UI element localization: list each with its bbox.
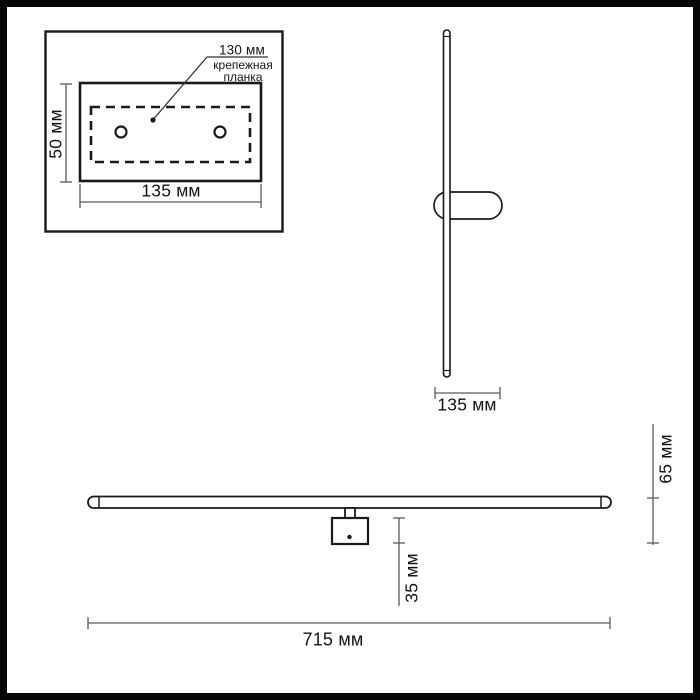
dimension-total-length	[88, 617, 610, 629]
label-mount-depth: 135 мм	[437, 395, 496, 416]
callout-line2: планка	[213, 72, 272, 84]
screw-hole-left	[116, 127, 127, 138]
lamp-tube-front	[88, 497, 611, 509]
label-body-offset: 65 мм	[656, 434, 677, 483]
lamp-front-view	[88, 424, 659, 629]
mounting-plate-outline	[80, 83, 261, 181]
lamp-tube-side	[444, 30, 451, 377]
screw-hole-right	[215, 127, 226, 138]
technical-drawing-page: 130 мм крепежная планка 50 мм 135 мм 135…	[0, 0, 700, 700]
label-mounting-plate-callout: крепежная планка	[213, 60, 272, 83]
label-plate-height: 50 мм	[46, 109, 67, 158]
drawing-linework	[0, 0, 700, 700]
lamp-side-view	[434, 30, 502, 399]
label-plate-length-top: 130 мм	[219, 43, 265, 58]
mount-box	[332, 518, 368, 544]
label-plate-length-bottom: 135 мм	[141, 181, 200, 202]
mount-screw-dot	[347, 535, 351, 539]
mount-neck	[345, 508, 355, 518]
label-total-length: 715 мм	[303, 630, 364, 651]
label-mount-height: 35 мм	[402, 553, 423, 602]
